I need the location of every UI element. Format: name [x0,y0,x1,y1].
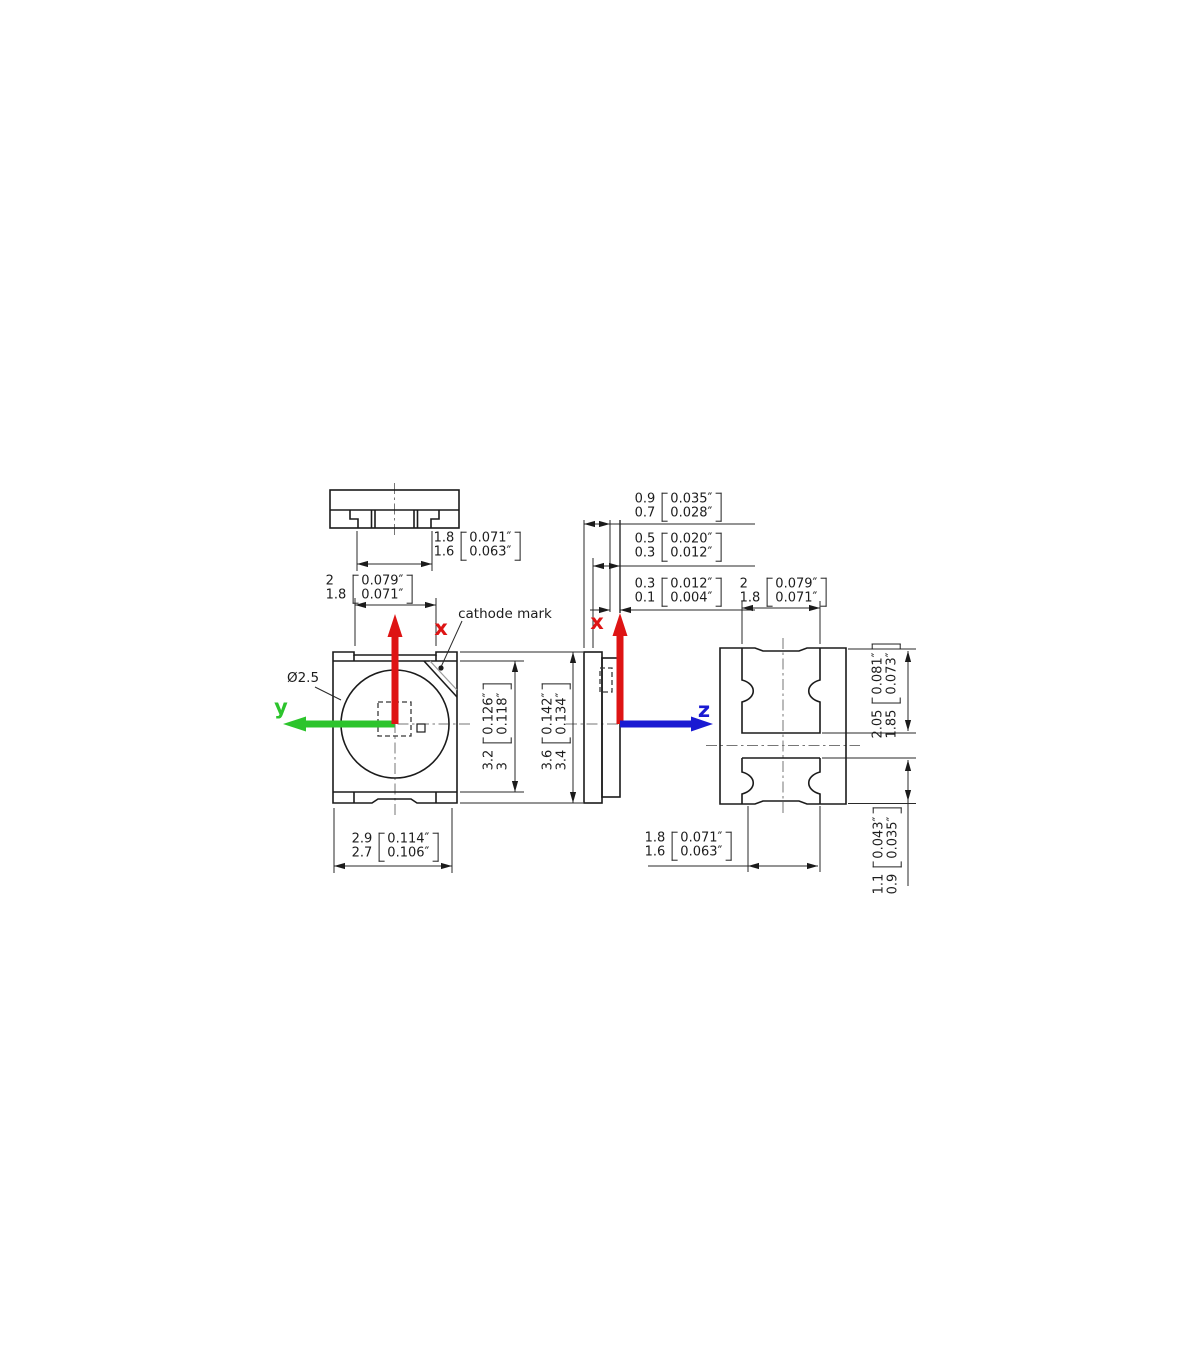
dim-front-height-inner: 3.23 0.126″0.118″ [483,684,512,771]
dim-back-upper-pad-height: 2.051.85 0.081″0.073″ [872,643,901,738]
dim-side-standoff: 0.30.1 0.012″0.004″ [635,578,722,607]
y-axis-label: y [274,695,288,719]
extension-lines [334,520,916,873]
dim-front-bottom-width: 2.92.7 0.114″0.106″ [352,833,439,862]
bracket-close [542,684,571,690]
cathode-leader-dot [438,665,443,670]
bracket-close [715,533,721,562]
bracket-open [873,862,902,868]
side-view [584,652,620,803]
bracket-open [872,698,901,704]
bracket-close [514,532,520,561]
bracket-close [432,833,438,862]
bracket-close [406,575,412,604]
z-axis-label: z [698,698,710,722]
dim-top-view-width: 1.81.6 0.071″0.063″ [434,532,521,561]
x-axis-label-front: x [434,616,448,640]
bracket-close [725,832,731,861]
bracket-close [872,643,901,649]
bracket-open [542,738,571,744]
bracket-close [715,493,721,522]
outline-drawing [0,0,1200,1372]
bracket-close [715,578,721,607]
dim-side-lead: 0.50.3 0.020″0.012″ [635,533,722,562]
bracket-close [483,684,512,690]
dim-back-top-width: 21.8 0.079″0.071″ [740,578,827,607]
dim-back-lower-pad-height: 1.10.9 0.043″0.035″ [873,808,902,895]
dim-side-thickness: 0.90.7 0.035″0.028″ [635,493,722,522]
front-view [315,621,462,803]
bracket-open [483,738,512,744]
drawing-page: cathode mark Ø2.5 x y x z 1.81.6 0.071″0… [0,0,1200,1372]
x-axis-label-side: x [590,610,604,634]
dim-front-height-outer: 3.63.4 0.142″0.134″ [542,684,571,771]
lens-diameter-label: Ø2.5 [287,670,319,686]
bracket-close [820,578,826,607]
dim-front-top-width: 21.8 0.079″0.071″ [326,575,413,604]
cathode-mark-label: cathode mark [458,606,552,622]
bracket-close [873,808,902,814]
dim-back-bottom-width: 1.81.6 0.071″0.063″ [645,832,732,861]
